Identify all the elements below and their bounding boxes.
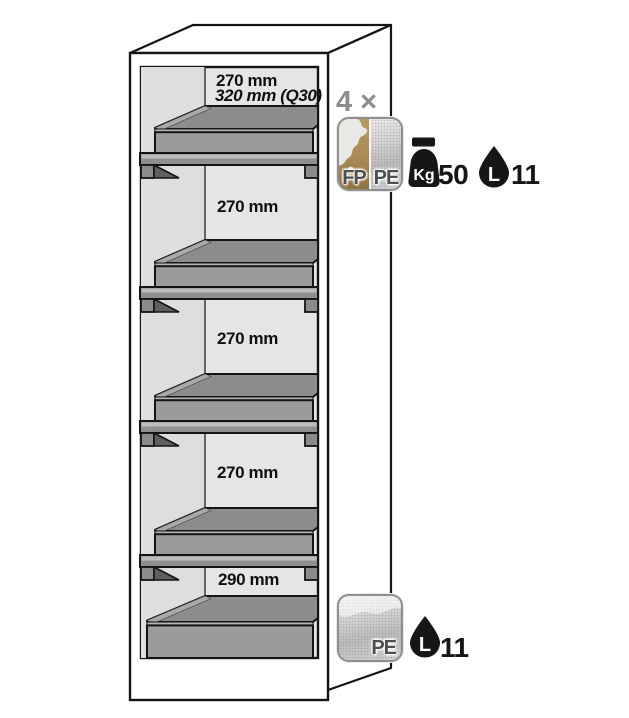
sump-pe-surface: PE	[339, 596, 401, 660]
pe-material-half: PE	[371, 119, 401, 189]
shelf-load-value: 50	[438, 161, 468, 189]
spacing-label-3: 270 mm	[217, 329, 278, 348]
spacing-label-1b: 320 mm (Q30)	[215, 86, 322, 105]
weight-icon: Kg	[407, 137, 441, 187]
spacing-label-4: 270 mm	[217, 463, 278, 482]
safety-cabinet-shelf-diagram: 270 mm 320 mm (Q30) 270 mm 270 mm 270 mm…	[0, 0, 629, 718]
spacing-label-5: 290 mm	[218, 570, 279, 589]
spacing-label-2: 270 mm	[217, 197, 278, 216]
kg-unit-label: Kg	[413, 167, 434, 184]
cabinet-illustration: 270 mm 320 mm (Q30) 270 mm 270 mm 270 mm…	[0, 0, 629, 718]
pe-label: PE	[374, 168, 399, 188]
sump-volume-value: 11	[440, 634, 469, 662]
shelf-count-label: 4 ×	[336, 88, 377, 117]
litre-unit-label: L	[488, 164, 500, 186]
sump-pe-label: PE	[371, 638, 396, 658]
sump-litre-unit-label: L	[419, 634, 431, 656]
shelf-volume-value: 11	[511, 161, 540, 189]
fp-label: FP	[342, 168, 366, 188]
sump-drop-icon: L	[409, 616, 441, 658]
fp-material-half: FP	[339, 119, 371, 189]
sump-material-chip: PE	[337, 594, 403, 662]
drop-icon: L	[478, 146, 510, 188]
shelf-material-chip: FP PE	[337, 117, 403, 191]
